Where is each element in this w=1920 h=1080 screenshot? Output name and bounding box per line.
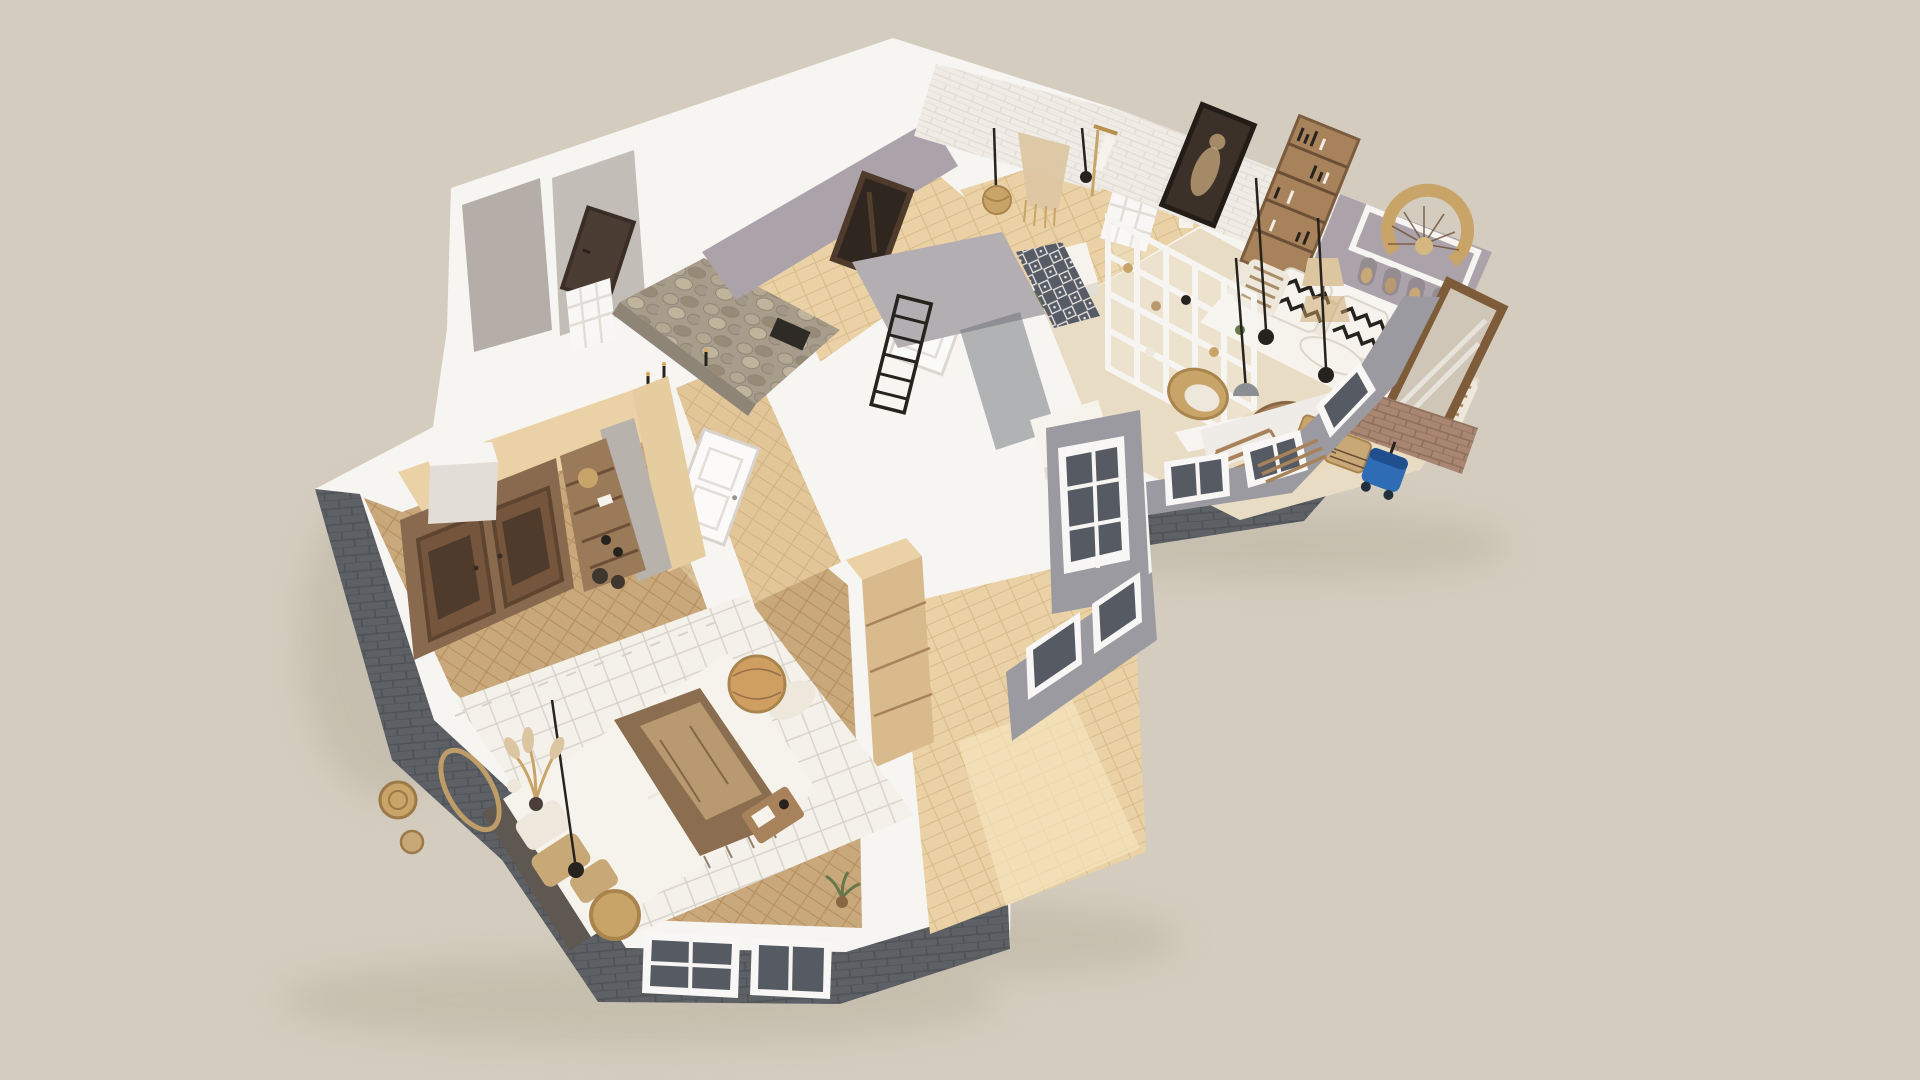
floorplan-render [0,0,1920,1080]
bay-window-2 [750,938,832,999]
floorplan-canvas [0,0,1920,1080]
hat [578,468,598,488]
closet-floor [462,178,552,352]
bay-window-1 [642,932,740,998]
ac-box [424,442,498,524]
pouf [729,656,785,712]
wicker-table [591,891,639,939]
